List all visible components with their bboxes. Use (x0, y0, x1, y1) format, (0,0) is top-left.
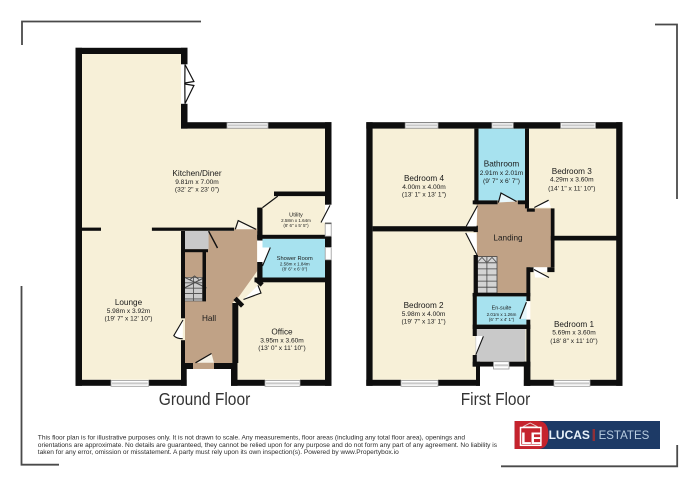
svg-text:9.81m x 7.00m: 9.81m x 7.00m (175, 179, 219, 186)
svg-text:(19' 7" x 13' 1"): (19' 7" x 13' 1") (401, 319, 445, 326)
svg-text:2.91m x 2.01m: 2.91m x 2.01m (480, 170, 524, 177)
svg-text:Bedroom 1: Bedroom 1 (554, 320, 594, 329)
svg-text:Lounge: Lounge (115, 298, 143, 307)
svg-text:LE: LE (521, 429, 541, 448)
svg-text:En-suite: En-suite (492, 306, 512, 312)
svg-text:(6' 7" x 4' 1"): (6' 7" x 4' 1") (489, 317, 515, 322)
svg-text:Bedroom 4: Bedroom 4 (404, 174, 444, 183)
svg-text:5.69m x 3.60m: 5.69m x 3.60m (552, 330, 596, 337)
svg-text:(8' 6" x 5' 5"): (8' 6" x 5' 5") (283, 223, 309, 228)
svg-text:4.00m x 4.00m: 4.00m x 4.00m (402, 184, 446, 191)
svg-text:Hall: Hall (202, 314, 216, 323)
svg-text:(32' 2" x 23' 0"): (32' 2" x 23' 0") (175, 187, 219, 194)
svg-text:5.98m x 3.92m: 5.98m x 3.92m (107, 308, 151, 315)
svg-text:5.98m x 4.00m: 5.98m x 4.00m (402, 311, 446, 318)
svg-text:Bathroom: Bathroom (484, 160, 520, 169)
svg-text:LUCAS: LUCAS (549, 428, 590, 442)
svg-text:(19' 7" x 12' 10"): (19' 7" x 12' 10") (105, 316, 153, 323)
svg-text:4.29m x 3.60m: 4.29m x 3.60m (550, 177, 594, 184)
svg-text:Ground Floor: Ground Floor (159, 389, 251, 409)
svg-text:Bedroom 3: Bedroom 3 (552, 167, 592, 176)
svg-text:This floor plan is for illustr: This floor plan is for illustrative purp… (38, 434, 466, 441)
svg-text:Landing: Landing (493, 234, 523, 243)
svg-text:Office: Office (271, 328, 293, 337)
svg-text:2.01m x 1.26m: 2.01m x 1.26m (487, 312, 517, 317)
svg-text:ESTATES: ESTATES (599, 430, 650, 442)
svg-text:orientations are approximate.: orientations are approximate. No details… (38, 442, 498, 449)
svg-text:Bedroom 2: Bedroom 2 (404, 301, 444, 310)
svg-text:(18' 8" x 11' 10"): (18' 8" x 11' 10") (550, 338, 597, 345)
svg-text:First Floor: First Floor (461, 389, 531, 409)
svg-text:(8' 6" x 6' 0"): (8' 6" x 6' 0") (282, 267, 308, 272)
svg-text:Kitchen/Diner: Kitchen/Diner (172, 169, 221, 178)
svg-text:3.95m x 3.60m: 3.95m x 3.60m (260, 338, 304, 345)
svg-text:(9' 7" x 6' 7"): (9' 7" x 6' 7") (483, 178, 520, 185)
svg-text:(13' 0" x 11' 10"): (13' 0" x 11' 10") (258, 345, 305, 352)
svg-text:(13' 1" x 13' 1"): (13' 1" x 13' 1") (402, 192, 446, 199)
svg-text:(14' 1" x 11' 10"): (14' 1" x 11' 10") (548, 185, 595, 192)
svg-text:taken for any error, omission: taken for any error, omission or misstat… (38, 449, 399, 456)
